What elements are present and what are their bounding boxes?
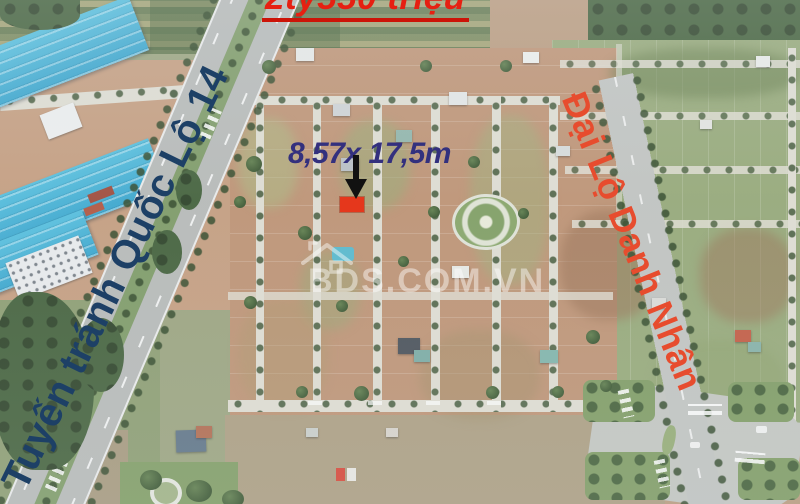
tree — [486, 386, 499, 399]
tree — [468, 156, 480, 168]
green-island — [738, 458, 800, 500]
tree — [246, 156, 262, 172]
tree — [420, 60, 432, 72]
park-hedge — [140, 470, 162, 490]
tree — [296, 386, 308, 398]
tree — [298, 226, 312, 240]
right-edge-road — [788, 48, 796, 432]
house-roof — [756, 56, 770, 67]
house-roof — [449, 92, 467, 105]
house-brick-walls — [196, 426, 212, 438]
tree-cluster — [0, 0, 80, 30]
car — [756, 426, 767, 433]
house-roof — [735, 330, 751, 342]
house-roof — [540, 350, 558, 363]
tree — [234, 196, 246, 208]
tree — [336, 300, 348, 312]
watermark-text: BDS.COM.VN — [308, 262, 545, 301]
grid-road-horizontal — [228, 96, 560, 105]
house-roof — [700, 120, 712, 129]
house-roof — [386, 428, 398, 437]
house-roof — [296, 48, 314, 61]
arrow-down-icon — [341, 155, 371, 201]
tree — [552, 386, 564, 398]
house-roof — [523, 52, 539, 63]
house-roof — [748, 342, 761, 352]
tree — [518, 208, 529, 219]
crosswalk — [368, 396, 382, 405]
grid-road-vertical — [492, 96, 501, 412]
park-hedge — [222, 490, 244, 504]
tree — [244, 296, 257, 309]
house-roof — [306, 428, 318, 437]
tree — [354, 386, 369, 401]
house-roof — [556, 146, 570, 156]
tree — [262, 60, 276, 74]
forest-top-right — [588, 0, 800, 44]
grid-road-vertical — [549, 96, 558, 412]
tree — [500, 60, 512, 72]
dirt-field — [700, 228, 795, 323]
aerial-listing-photo: BDS.COM.VN 2ty550 triệu Tuyến tránh Quốc… — [0, 0, 800, 504]
crosswalk — [308, 396, 322, 405]
park-hedge — [186, 480, 212, 502]
crosswalk — [688, 404, 722, 415]
house-roof — [333, 104, 350, 116]
green-island — [728, 382, 794, 422]
car — [690, 442, 700, 448]
house-roof — [414, 350, 430, 362]
grid-road-vertical — [256, 96, 264, 412]
tree — [428, 206, 440, 218]
tree — [600, 380, 612, 392]
crosswalk — [426, 396, 440, 405]
tree — [586, 330, 600, 344]
truck — [336, 468, 345, 481]
price-label: 2ty550 triệu — [262, 0, 469, 22]
truck — [347, 468, 356, 481]
